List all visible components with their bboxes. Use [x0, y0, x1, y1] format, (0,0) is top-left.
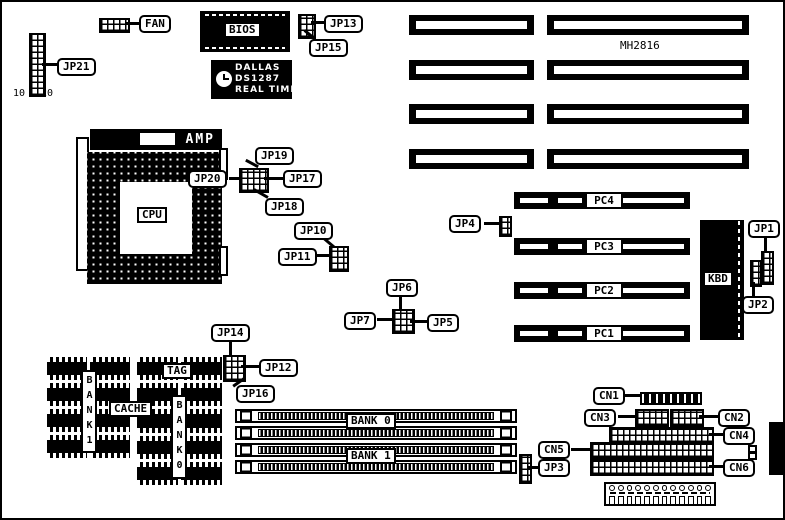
callout-cn6: CN6 — [723, 459, 755, 477]
jp10-jp11-connector — [329, 246, 349, 272]
cn3-connector — [635, 409, 669, 427]
fan-connector — [99, 18, 130, 33]
callout-jp20: JP20 — [188, 170, 227, 188]
power-divider — [610, 492, 710, 494]
isa-slot — [409, 149, 534, 169]
power-pin-oval — [662, 485, 668, 491]
power-pin-oval — [670, 485, 676, 491]
cache-chip — [181, 436, 222, 459]
isa-slot — [409, 104, 534, 124]
power-pin-square — [627, 496, 633, 506]
slot-contact — [622, 244, 684, 249]
callout-cn2: CN2 — [718, 409, 750, 427]
motherboard-diagram: JP21 10 20 FAN BIOS DALLAS DS1287 REAL T… — [0, 0, 785, 520]
slot-contact — [520, 288, 548, 293]
callout-fan: FAN — [139, 15, 171, 33]
power-pin-oval — [653, 485, 659, 491]
pci-slot-pc4: PC4 — [514, 192, 690, 209]
callout-jp6: JP6 — [386, 279, 418, 297]
cn1-connector — [640, 392, 702, 405]
power-pin-oval — [609, 485, 615, 491]
cn5-pointer — [571, 448, 591, 451]
isa-slot — [547, 149, 749, 169]
jp7-pointer — [377, 318, 393, 321]
callout-jp15: JP15 — [309, 39, 348, 57]
jp4-connector — [499, 216, 512, 237]
simm-clip — [500, 462, 512, 473]
cache-chip — [181, 409, 222, 432]
power-pin-oval — [627, 485, 633, 491]
pci-slot-label: PC3 — [585, 238, 623, 255]
power-pin-square — [697, 496, 703, 506]
isa-slot — [547, 15, 749, 35]
simm-clip — [500, 411, 512, 422]
dallas-brand: DALLAS — [235, 63, 280, 73]
jp13-pointer — [311, 21, 325, 24]
isa-slot — [409, 60, 534, 80]
callout-jp1: JP1 — [748, 220, 780, 238]
jp20-pointer — [229, 177, 240, 180]
simm-clip — [240, 462, 252, 473]
power-pin-oval — [618, 485, 624, 491]
callout-jp7: JP7 — [344, 312, 376, 330]
dallas-rtc-chip: DALLAS DS1287 REAL TIME — [211, 60, 292, 99]
jp17-pointer — [264, 177, 284, 180]
callout-jp12: JP12 — [259, 359, 298, 377]
cpu-socket-center: CPU — [120, 182, 192, 254]
power-pin-oval — [635, 485, 641, 491]
callout-cn1: CN1 — [593, 387, 625, 405]
simm-contacts — [258, 463, 494, 471]
cn2-pointer — [699, 415, 719, 418]
power-pin-square — [635, 496, 641, 506]
simm-clip — [500, 445, 512, 456]
power-pin-square — [705, 496, 711, 506]
power-pin-square — [670, 496, 676, 506]
callout-cn5: CN5 — [538, 441, 570, 459]
callout-jp4: JP4 — [449, 215, 481, 233]
slot-contact — [520, 331, 548, 336]
callout-jp2: JP2 — [742, 296, 774, 314]
kbd-label: KBD — [703, 271, 733, 287]
cn5-connector — [590, 442, 714, 459]
callout-jp19: JP19 — [255, 147, 294, 165]
pci-slot-pc2: PC2 — [514, 282, 690, 299]
isa-slot — [547, 60, 749, 80]
jp4-pointer — [484, 222, 499, 225]
amp-window — [140, 133, 175, 145]
simm-clip — [240, 411, 252, 422]
jp2-pointer — [752, 282, 755, 297]
slot-contact — [558, 198, 582, 203]
cache-label: CACHE — [109, 401, 152, 417]
callout-jp11: JP11 — [278, 248, 317, 266]
power-pin-square — [688, 496, 694, 506]
slot-contact — [558, 288, 582, 293]
slot-contact — [558, 331, 582, 336]
callout-cn4: CN4 — [723, 427, 755, 445]
pci-slot-pc3: PC3 — [514, 238, 690, 255]
cn1-contacts — [642, 394, 700, 403]
simm-clip — [240, 428, 252, 439]
pci-slot-label: PC4 — [585, 192, 623, 209]
callout-jp18: JP18 — [265, 198, 304, 216]
callout-jp17: JP17 — [283, 170, 322, 188]
fan-pointer — [125, 22, 140, 25]
power-pin-square — [653, 496, 659, 506]
tag-ram-label: TAG — [162, 363, 192, 379]
callout-cn3: CN3 — [584, 409, 616, 427]
callout-jp16: JP16 — [236, 385, 275, 403]
slot-contact — [520, 198, 548, 203]
jp5-pointer — [410, 320, 428, 323]
amp-label: AMP — [186, 132, 215, 147]
cn1-pointer — [624, 394, 640, 397]
memory-bank0-label: BANK 0 — [346, 413, 396, 429]
slot-contact — [622, 198, 684, 203]
cn6-pointer — [709, 465, 724, 468]
callout-jp14: JP14 — [211, 324, 250, 342]
power-connector — [604, 482, 716, 506]
pci-slot-label: PC2 — [585, 282, 623, 299]
keyboard-port-connector — [769, 422, 785, 475]
alarm-clock-icon — [216, 71, 232, 87]
cn4-pointer — [709, 433, 724, 436]
cpu-label: CPU — [137, 207, 167, 223]
slot-contact — [622, 331, 684, 336]
power-pin-square — [662, 496, 668, 506]
callout-jp13: JP13 — [324, 15, 363, 33]
cn2-connector — [670, 409, 704, 427]
simm-contacts — [258, 429, 494, 437]
callout-jp5: JP5 — [427, 314, 459, 332]
jp11-pointer — [315, 254, 329, 257]
simm-clip — [500, 428, 512, 439]
power-pin-oval — [644, 485, 650, 491]
power-pin-oval — [705, 485, 711, 491]
pci-slot-label: PC1 — [585, 325, 623, 342]
jp1-connector — [761, 251, 774, 285]
memory-bank1-label: BANK 1 — [346, 448, 396, 464]
cache-bank0-vertical-label: BANK0 — [171, 395, 187, 479]
bios-label: BIOS — [224, 22, 261, 38]
cn6-connector — [590, 459, 714, 476]
jp1-pointer — [764, 236, 767, 252]
power-pin-square — [644, 496, 650, 506]
power-pin-square — [609, 496, 615, 506]
slot-contact — [558, 244, 582, 249]
jp21-pointer — [42, 63, 58, 66]
pci-slot-pc1: PC1 — [514, 325, 690, 342]
jp3-connector — [519, 454, 532, 484]
dallas-real-time: REAL TIME — [235, 85, 298, 95]
jp21-pin10-label: 10 — [13, 88, 25, 99]
power-pin-row-oval — [606, 484, 714, 492]
isa-slot — [409, 15, 534, 35]
isa-slot — [547, 104, 749, 124]
cn3-pointer — [618, 415, 635, 418]
power-pin-oval — [688, 485, 694, 491]
slot-contact — [520, 244, 548, 249]
dallas-part-number: DS1287 — [235, 74, 280, 84]
power-pin-square — [679, 496, 685, 506]
socket-key-tab — [219, 246, 228, 276]
power-pin-square — [618, 496, 624, 506]
amp-bar: AMP — [90, 129, 222, 150]
callout-jp21: JP21 — [57, 58, 96, 76]
jp12-pointer — [241, 365, 260, 368]
cache-bank1-vertical-label: BANK1 — [81, 370, 97, 453]
callout-jp10: JP10 — [294, 222, 333, 240]
slot-contact — [622, 288, 684, 293]
cache-chip — [181, 383, 222, 406]
power-pin-oval — [697, 485, 703, 491]
simm-clip — [240, 445, 252, 456]
callout-jp3: JP3 — [538, 459, 570, 477]
board-model-label: MH2816 — [620, 39, 660, 52]
power-pin-oval — [679, 485, 685, 491]
power-pin-row-square — [606, 495, 714, 507]
cache-chip — [181, 462, 222, 485]
